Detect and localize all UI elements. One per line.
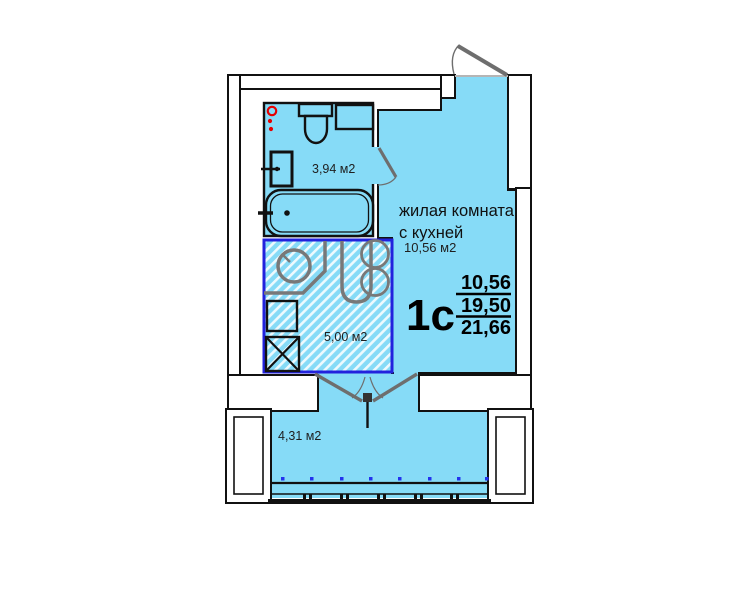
living-room-area-label: 10,56 м2 — [404, 240, 456, 255]
bathroom-door-opening — [371, 147, 380, 184]
bathtub-drain-icon — [284, 210, 290, 216]
balcony-pier-right-inner — [496, 417, 525, 494]
entry-door-swing — [452, 45, 459, 74]
living-room-label-line1: жилая комната — [399, 202, 515, 220]
balcony-floor — [271, 411, 488, 498]
balcony-area-label: 4,31 м2 — [278, 429, 321, 443]
floor-plan: 3,94 м2 жилая комната с кухней 10,56 м2 … — [0, 0, 740, 600]
balcony-door-latch — [363, 393, 372, 402]
toilet-icon — [305, 116, 327, 143]
wall-right-lower — [516, 188, 531, 377]
entry-door-icon — [458, 46, 507, 75]
riser-dot-icon — [269, 127, 273, 131]
window-frame-bottom — [268, 499, 491, 504]
floor-plan-drawing: 3,94 м2 жилая комната с кухней 10,56 м2 … — [0, 0, 740, 600]
bathtub-icon — [266, 190, 373, 236]
wall-left — [228, 75, 240, 413]
riser-dot-icon — [268, 119, 272, 123]
wall-bottom-right-block — [419, 375, 531, 411]
total-area-value: 19,50 — [461, 295, 511, 317]
kitchen-area-label: 5,00 м2 — [324, 330, 367, 344]
sink-icon — [336, 105, 373, 129]
balcony-pier-left-inner — [234, 417, 263, 494]
toilet-tank-icon — [299, 104, 332, 116]
wall-bottom-left-block — [228, 375, 318, 411]
overall-area-value: 21,66 — [461, 317, 511, 339]
wall-right-upper — [508, 75, 531, 190]
wall-entry-jamb — [441, 75, 455, 98]
bathroom-area-label: 3,94 м2 — [312, 162, 355, 176]
washbasin-drain-icon — [275, 167, 279, 171]
unit-code-label: 1с — [406, 291, 455, 340]
wall-top — [228, 75, 455, 89]
living-area-value: 10,56 — [461, 272, 511, 294]
